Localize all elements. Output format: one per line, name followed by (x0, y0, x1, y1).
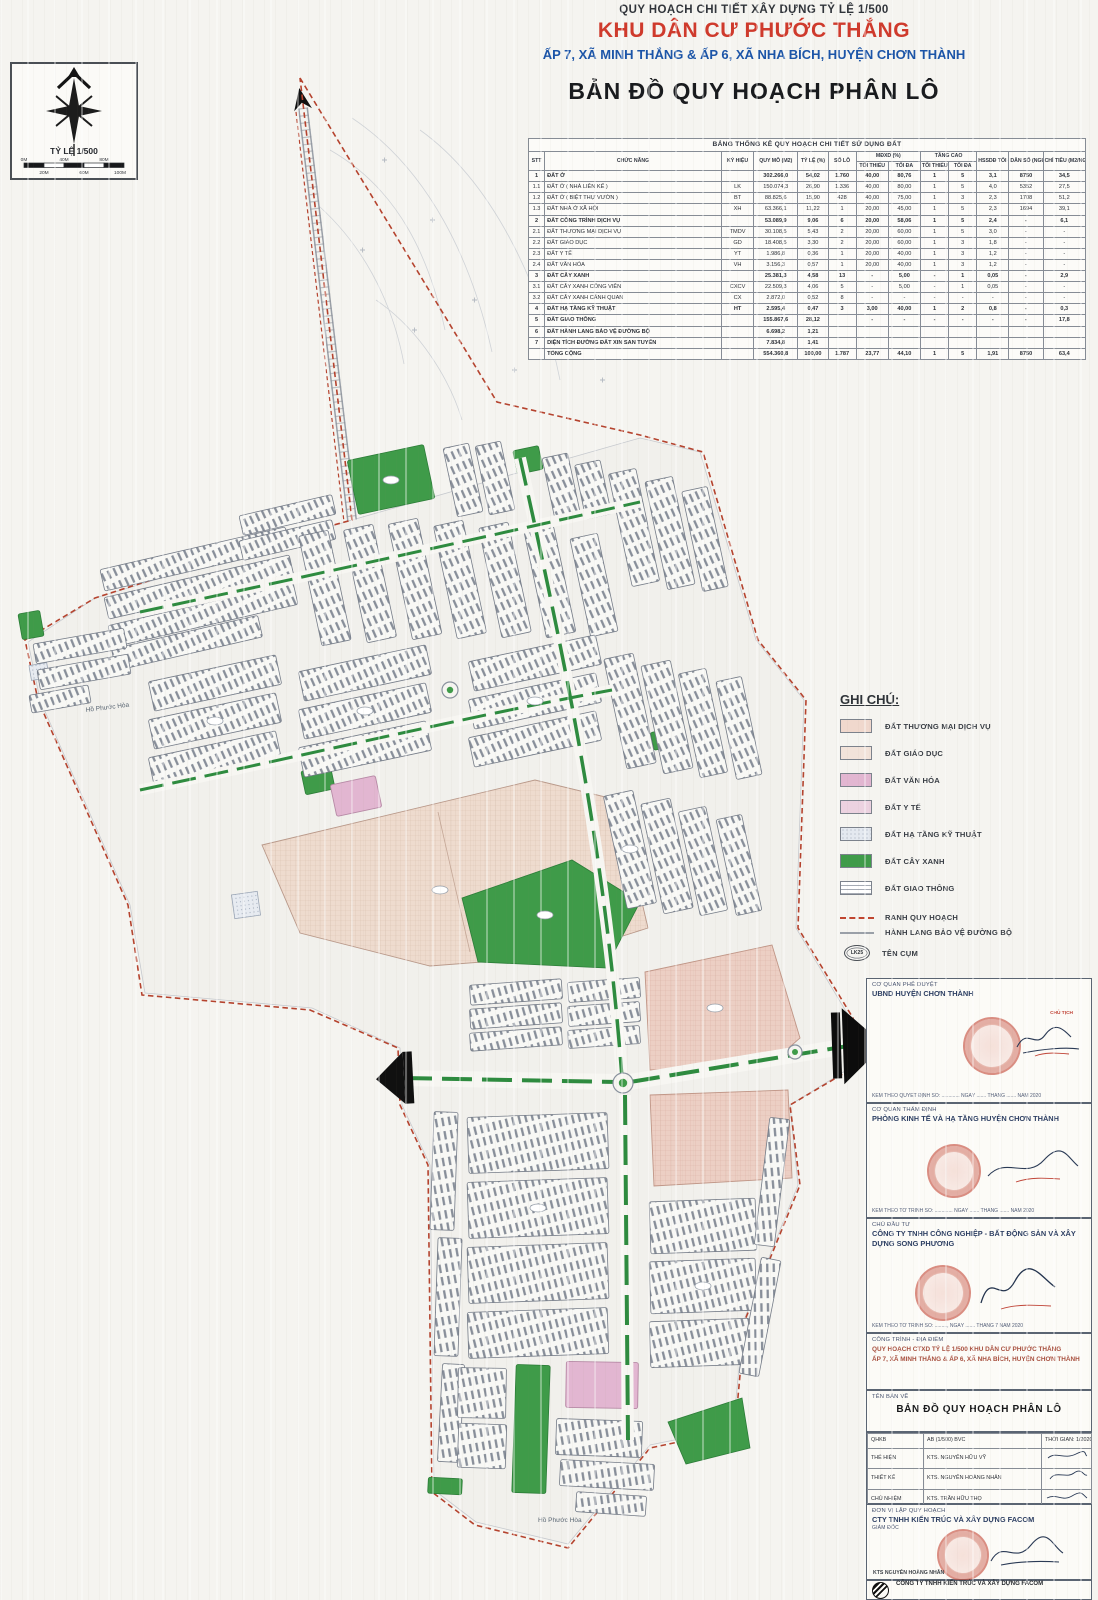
legend-boundary-line (840, 917, 874, 919)
company-name: CÔNG TY TNHH KIẾN TRÚC VÀ XÂY DỰNG FACOM (896, 1581, 1043, 1587)
stats-row: 2ĐẤT CÔNG TRÌNH DỊCH VỤ53.089,99,06620,0… (529, 215, 1086, 226)
stats-row: 4ĐẤT HẠ TẦNG KỸ THUẬTHT2.595,40,4733,004… (529, 304, 1086, 315)
land-use-statistics-table: BẢNG THỐNG KÊ QUY HOẠCH CHI TIẾT SỬ DỤNG… (528, 138, 1086, 360)
stamp-role-label: CHỦ TỊCH (1050, 1011, 1073, 1016)
planner-company-footer: CÔNG TY TNHH KIẾN TRÚC VÀ XÂY DỰNG FACOM… (866, 1580, 1092, 1600)
crew-table-box: QHKB AB (1/500) BVC THỜI GIAN: 1/2020 TH… (866, 1432, 1092, 1504)
svg-text:TỶ LỆ 1/500: TỶ LỆ 1/500 (50, 145, 98, 156)
svg-text:100M: 100M (114, 170, 126, 176)
investor-org: CÔNG TY TNHH CÔNG NGHIỆP - BẤT ĐỘNG SẢN … (872, 1229, 1086, 1248)
stats-row: 1.3ĐẤT NHÀ Ở XÃ HỘIXH63.366,111,22120,00… (529, 204, 1086, 215)
signature (1013, 1019, 1083, 1059)
legend-swatch-medical (840, 800, 872, 814)
official-stamp (913, 1263, 974, 1324)
project-line2: ẤP 7, XÃ MINH THẮNG & ẤP 6, XÃ NHA BÍCH,… (872, 1355, 1086, 1364)
sheet-title: BẢN ĐỒ QUY HOẠCH PHÂN LÔ (410, 78, 1098, 105)
signature (1042, 1449, 1090, 1462)
table-title: BẢNG THỐNG KÊ QUY HOẠCH CHI TIẾT SỬ DỤNG… (529, 139, 1086, 152)
compass-icon: TỶ LỆ 1/500 0M 40M 80M 20M 60M 100M (12, 64, 136, 178)
lake-label: Hồ Phước Hòa (538, 1515, 582, 1524)
table-body: 1ĐẤT Ở302.266,054,021.76040,0080,76153,1… (529, 171, 1086, 360)
approval-authority-box: CƠ QUAN PHÊ DUYỆT UBND HUYỆN CHƠN THÀNH … (866, 978, 1092, 1103)
project-role: CÔNG TRÌNH - ĐỊA ĐIỂM (872, 1337, 1086, 1343)
report-ref-line: KÈM THEO TỜ TRÌNH SỐ: ............. NGÀY… (872, 1208, 1086, 1214)
drawing-role: TÊN BẢN VẼ (872, 1394, 1086, 1400)
stats-row: 1.1ĐẤT Ở ( NHÀ LIÊN KẾ )LK150.074,326,90… (529, 182, 1086, 193)
planner-role: ĐƠN VỊ LẬP QUY HOẠCH (872, 1508, 1086, 1514)
legend-swatch-culture (840, 773, 872, 787)
scale-bar (24, 163, 124, 168)
stats-row: 2.4ĐẤT VĂN HÓAVH3.156,30,57120,0040,0013… (529, 259, 1086, 270)
facom-logo-icon (872, 1582, 889, 1599)
signature (975, 1263, 1065, 1313)
project-name: KHU DÂN CƯ PHƯỚC THẮNG (410, 19, 1098, 43)
svg-text:80M: 80M (99, 157, 108, 163)
project-location: ẤP 7, XÃ MINH THẮNG & ẤP 6, XÃ NHA BÍCH,… (410, 47, 1098, 62)
sheet-header: QUY HOẠCH CHI TIẾT XÂY DỰNG TỶ LỆ 1/500 … (410, 4, 1098, 105)
appraisal-agency-box: CƠ QUAN THẨM ĐỊNH PHÒNG KINH TẾ VÀ HẠ TẦ… (866, 1103, 1092, 1218)
project-line1: QUY HOẠCH CTXD TỶ LỆ 1/500 KHU DÂN CƯ PH… (872, 1345, 1086, 1354)
cluster-name-badge: LK25 (844, 945, 870, 961)
stats-row: 6ĐẤT HÀNH LANG BẢO VỆ ĐƯỜNG BỘ6.698,21,2… (529, 326, 1086, 337)
header-subtitle: QUY HOẠCH CHI TIẾT XÂY DỰNG TỶ LỆ 1/500 (410, 4, 1098, 16)
map-legend: GHI CHÚ: ĐẤT THƯƠNG MẠI DỊCH VỤ ĐẤT GIÁO… (840, 692, 1092, 974)
plan-sheet: Hồ Phước Hòa Hồ Phước Hòa QUY HOẠCH CHI … (0, 0, 1098, 1600)
approval-role: CƠ QUAN PHÊ DUYỆT (872, 982, 1086, 988)
west-road-arrow-icon (375, 1051, 415, 1105)
crew-meta-label: QHKB (868, 1434, 924, 1449)
signature (986, 1146, 1081, 1188)
stats-row: 1.2ĐẤT Ở ( BIỆT THỰ VƯỜN )BT88.825,615,9… (529, 193, 1086, 204)
legend-corridor-line (840, 932, 874, 934)
stats-row: 2.1ĐẤT THƯƠNG MẠI DỊCH VỤTMDV30.108,55,4… (529, 226, 1086, 237)
appraisal-role: CƠ QUAN THẨM ĐỊNH (872, 1107, 1086, 1113)
drawing-name: BẢN ĐỒ QUY HOẠCH PHÂN LÔ (872, 1404, 1086, 1415)
compass-scale-box: TỶ LỆ 1/500 0M 40M 80M 20M 60M 100M (10, 62, 138, 180)
legend-swatch-education (840, 746, 872, 760)
signature (1042, 1469, 1090, 1482)
approval-org: UBND HUYỆN CHƠN THÀNH (872, 989, 1086, 999)
drawing-name-box: TÊN BẢN VẼ BẢN ĐỒ QUY HOẠCH PHÂN LÔ (866, 1390, 1092, 1432)
stats-row: TỔNG CỘNG554.360,8100,001.78723,7744,101… (529, 348, 1086, 359)
svg-text:40M: 40M (59, 157, 68, 163)
stats-row: 7DIỆN TÍCH ĐƯỜNG ĐẤT XIN SAN TUYẾN7.834,… (529, 337, 1086, 348)
investor-role: CHỦ ĐẦU TƯ (872, 1222, 1086, 1228)
stats-row: 5ĐẤT GIAO THÔNG155.867,628,12------17,8 (529, 315, 1086, 326)
legend-swatch-infrastructure (840, 827, 872, 841)
official-stamp (924, 1141, 983, 1200)
stats-row: 2.3ĐẤT Y TẾYT1.986,80,36120,0040,00131,2… (529, 248, 1086, 259)
svg-text:60M: 60M (79, 170, 88, 176)
decision-ref-line: KÈM THEO QUYẾT ĐỊNH SỐ: ............. NG… (872, 1093, 1086, 1099)
legend-swatch-traffic (840, 881, 872, 895)
investor-box: CHỦ ĐẦU TƯ CÔNG TY TNHH CÔNG NGHIỆP - BẤ… (866, 1218, 1092, 1333)
planning-unit-box: ĐƠN VỊ LẬP QUY HOẠCH CTY TNHH KIẾN TRÚC … (866, 1504, 1092, 1580)
svg-text:20M: 20M (39, 170, 48, 176)
stats-row: 3ĐẤT CÂY XANH25.381,34,5813-5,00-10,05-2… (529, 271, 1086, 282)
crew-meta-value: AB (1/500) BVC (924, 1434, 1042, 1449)
svg-text:0M: 0M (21, 157, 28, 163)
legend-swatch-commercial (840, 719, 872, 733)
crew-meta-right: THỜI GIAN: 1/2020 (1042, 1434, 1092, 1449)
appraisal-org: PHÒNG KINH TẾ VÀ HẠ TẦNG HUYỆN CHƠN THÀN… (872, 1114, 1086, 1124)
signature (1042, 1490, 1090, 1503)
signature (987, 1531, 1067, 1571)
stats-row: 2.2ĐẤT GIÁO DỤCGD18.408,53,30220,0060,00… (529, 237, 1086, 248)
legend-swatch-green (840, 854, 872, 868)
stats-row: 3.2ĐẤT CÂY XANH CẢNH QUANCX2.872,00,528-… (529, 293, 1086, 304)
contour-lines (312, 118, 560, 420)
report-ref-line: KÈM THEO TỜ TRÌNH SỐ: ........., NGÀY ..… (872, 1323, 1086, 1329)
stats-row: 1ĐẤT Ở302.266,054,021.76040,0080,76153,1… (529, 171, 1086, 182)
access-road (296, 108, 352, 522)
legend-title: GHI CHÚ: (840, 692, 1092, 707)
planner-org: CTY TNHH KIẾN TRÚC VÀ XÂY DỰNG FACOM (872, 1515, 1086, 1525)
planner-sub-role: GIÁM ĐỐC (872, 1525, 1086, 1531)
project-location-box: CÔNG TRÌNH - ĐỊA ĐIỂM QUY HOẠCH CTXD TỶ … (866, 1333, 1092, 1390)
stats-row: 3.1ĐẤT CÂY XANH CÔNG VIÊNCXCV22.509,34,0… (529, 282, 1086, 293)
